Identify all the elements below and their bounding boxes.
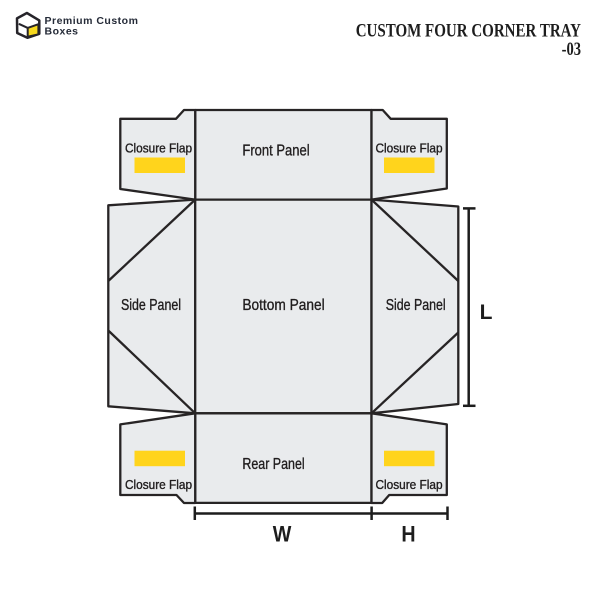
svg-text:Closure Flap: Closure Flap [125,478,192,492]
svg-text:Bottom Panel: Bottom Panel [242,297,324,314]
svg-text:Side Panel: Side Panel [121,297,181,314]
svg-text:Side Panel: Side Panel [386,297,446,314]
svg-text:-03: -03 [562,40,581,60]
svg-text:H: H [401,522,415,547]
svg-text:Boxes: Boxes [45,26,79,38]
svg-text:CUSTOM FOUR CORNER TRAY: CUSTOM FOUR CORNER TRAY [356,22,582,42]
svg-text:W: W [273,522,292,547]
svg-text:Closure Flap: Closure Flap [375,141,442,155]
svg-text:Front Panel: Front Panel [242,143,309,160]
svg-text:Closure Flap: Closure Flap [375,478,442,492]
svg-text:L: L [480,301,493,324]
svg-text:Closure Flap: Closure Flap [125,141,192,155]
svg-text:Rear Panel: Rear Panel [242,456,304,473]
